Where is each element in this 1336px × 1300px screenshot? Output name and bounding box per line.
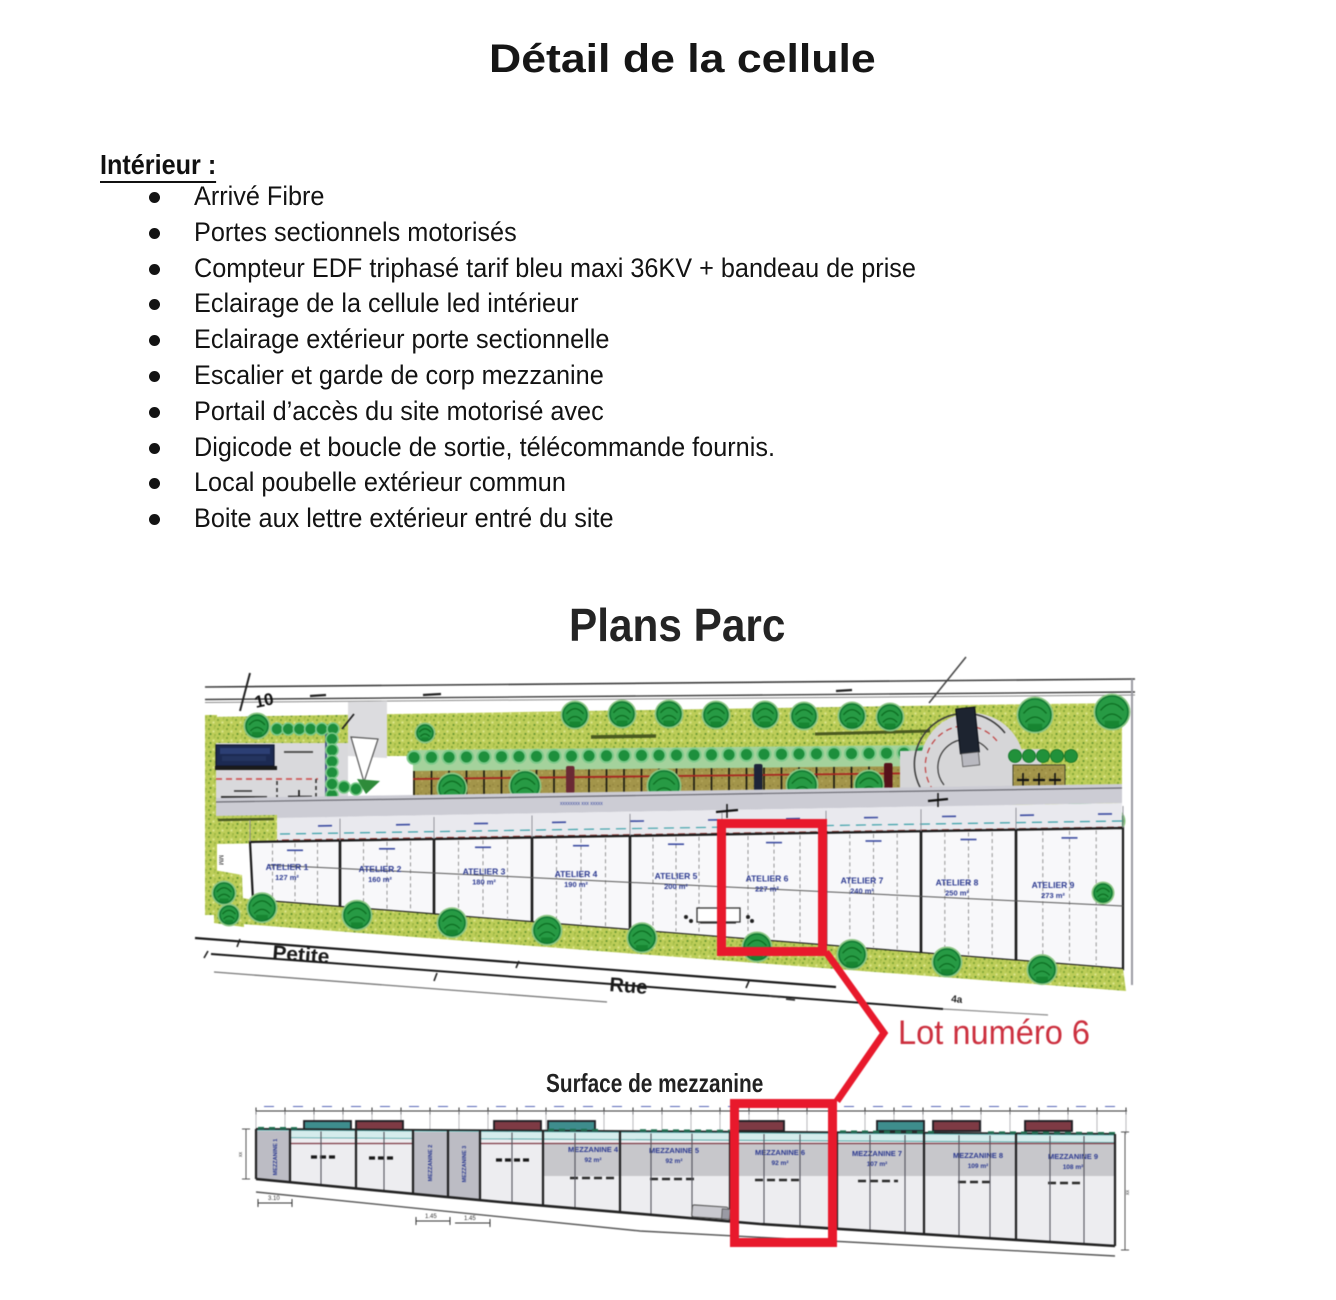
- svg-text:MEZZANINE 7: MEZZANINE 7: [852, 1149, 902, 1158]
- svg-text:ATELIER 7: ATELIER 7: [841, 876, 884, 886]
- svg-text:190 m²: 190 m²: [564, 880, 588, 889]
- svg-text:MEZZANINE 9: MEZZANINE 9: [1048, 1152, 1098, 1161]
- svg-text:Rue: Rue: [609, 974, 649, 999]
- svg-text:10: 10: [253, 689, 275, 712]
- svg-text:4a: 4a: [951, 994, 963, 1006]
- svg-text:109 m²: 109 m²: [968, 1163, 989, 1170]
- svg-text:ATELIER 9: ATELIER 9: [1032, 880, 1075, 890]
- svg-text:MEZZANINE 3: MEZZANINE 3: [462, 1146, 468, 1183]
- svg-text:1.45: 1.45: [425, 1214, 437, 1220]
- svg-text:160 m²: 160 m²: [368, 875, 392, 884]
- svg-text:ATELIER 1: ATELIER 1: [266, 862, 309, 872]
- svg-text:xxxxxxxx xxx xxxxx: xxxxxxxx xxx xxxxx: [560, 801, 603, 807]
- svg-text:MEZZANINE 8: MEZZANINE 8: [953, 1151, 1003, 1160]
- svg-text:MM: MM: [217, 855, 223, 865]
- svg-text:1.45: 1.45: [464, 1216, 476, 1222]
- svg-text:ATELIER 3: ATELIER 3: [463, 867, 506, 877]
- svg-text:273 m²: 273 m²: [1041, 891, 1065, 900]
- svg-text:ATELIER 6: ATELIER 6: [746, 873, 789, 883]
- svg-text:240 m²: 240 m²: [850, 887, 874, 896]
- svg-text:MEZZANINE 6: MEZZANINE 6: [755, 1148, 805, 1157]
- svg-text:92 m²: 92 m²: [666, 1158, 684, 1165]
- svg-text:127 m²: 127 m²: [275, 873, 299, 882]
- svg-text:227 m²: 227 m²: [755, 884, 779, 893]
- svg-text:MEZZANINE 2: MEZZANINE 2: [428, 1145, 434, 1182]
- svg-text:MEZZANINE 4: MEZZANINE 4: [568, 1145, 619, 1154]
- svg-text:ATELIER 5: ATELIER 5: [655, 871, 698, 881]
- svg-text:108 m²: 108 m²: [1063, 1164, 1084, 1171]
- svg-text:xx: xx: [238, 1152, 244, 1158]
- svg-text:200 m²: 200 m²: [664, 882, 688, 891]
- svg-text:xx: xx: [1125, 1190, 1131, 1196]
- svg-text:MEZZANINE 1: MEZZANINE 1: [273, 1139, 279, 1176]
- svg-text:ATELIER 8: ATELIER 8: [936, 878, 979, 888]
- svg-text:3.10: 3.10: [268, 1196, 280, 1202]
- svg-text:92 m²: 92 m²: [585, 1157, 603, 1164]
- svg-text:ATELIER 2: ATELIER 2: [359, 864, 402, 874]
- svg-text:180 m²: 180 m²: [472, 878, 496, 887]
- svg-text:250 m²: 250 m²: [945, 889, 969, 898]
- svg-text:92 m²: 92 m²: [772, 1160, 790, 1167]
- svg-text:ATELIER 4: ATELIER 4: [555, 869, 598, 879]
- svg-text:Petite: Petite: [272, 942, 331, 968]
- svg-text:Lot numéro 6: Lot numéro 6: [898, 1014, 1090, 1052]
